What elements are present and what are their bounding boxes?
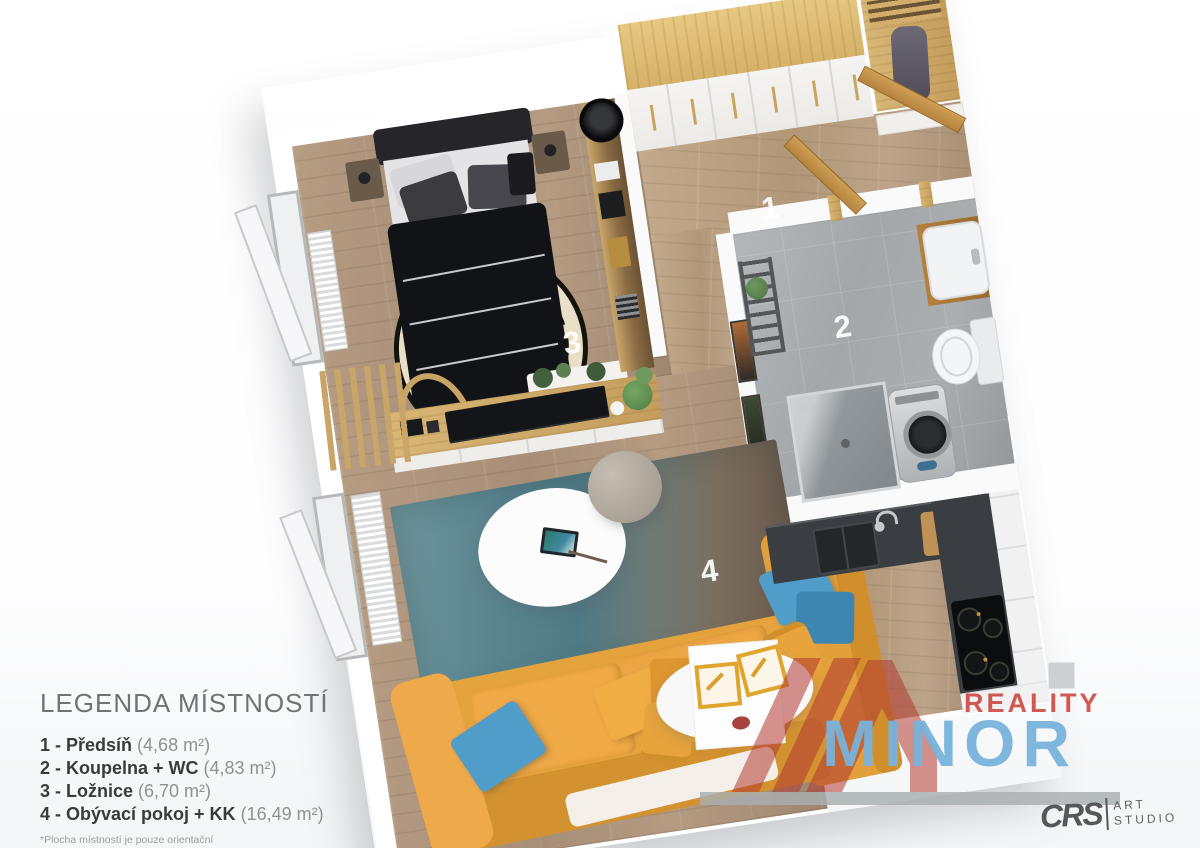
legend-item-3-area: (6,70 m²) [138,781,211,801]
legend-title: LEGENDA MÍSTNOSTÍ [40,688,329,719]
legend-item-4-label: 4 - Obývací pokoj + KK [40,804,236,824]
floorplan-render: 3 1 2 [0,0,1200,848]
legend-item-3-label: 3 - Ložnice [40,781,133,801]
placemat-1 [694,661,742,709]
legend-item-2: 2 - Koupelna + WC (4,83 m²) [40,757,329,779]
legend-item-2-area: (4,83 m²) [204,758,277,778]
legend-item-1-area: (4,68 m²) [137,735,210,755]
legend-item-4-area: (16,49 m²) [241,804,324,824]
floorplan: 3 1 2 [250,0,1061,848]
burner-1 [956,606,983,633]
studio-logo: CRS ART STUDIO [1039,791,1178,835]
studio-abbr: CRS [1039,795,1102,835]
studio-logo-divider [1105,798,1109,830]
gray-stool-box [1048,662,1074,688]
legend-item-3: 3 - Ložnice (6,70 m²) [40,780,329,802]
legend-footnote: *Plocha místností je pouze orientační [40,834,329,846]
sink-divider [841,527,849,569]
legend-item-2-label: 2 - Koupelna + WC [40,758,199,778]
kitchen-sink [812,521,880,576]
legend-item-1-label: 1 - Předsíň [40,735,132,755]
legend-item-1: 1 - Předsíň (4,68 m²) [40,734,329,756]
studio-word-studio: STUDIO [1114,810,1178,828]
kitchen-faucet-arc [874,509,898,527]
placemat-2-cutlery [751,657,767,677]
legend: LEGENDA MÍSTNOSTÍ 1 - Předsíň (4,68 m²) … [40,688,329,846]
placemat-1-cutlery [706,672,724,690]
burner-4 [988,660,1011,683]
room-label-living: 4 [687,551,732,593]
legend-item-4: 4 - Obývací pokoj + KK (16,49 m²) [40,803,329,825]
burner-3 [962,649,989,676]
burner-2 [981,617,1004,640]
